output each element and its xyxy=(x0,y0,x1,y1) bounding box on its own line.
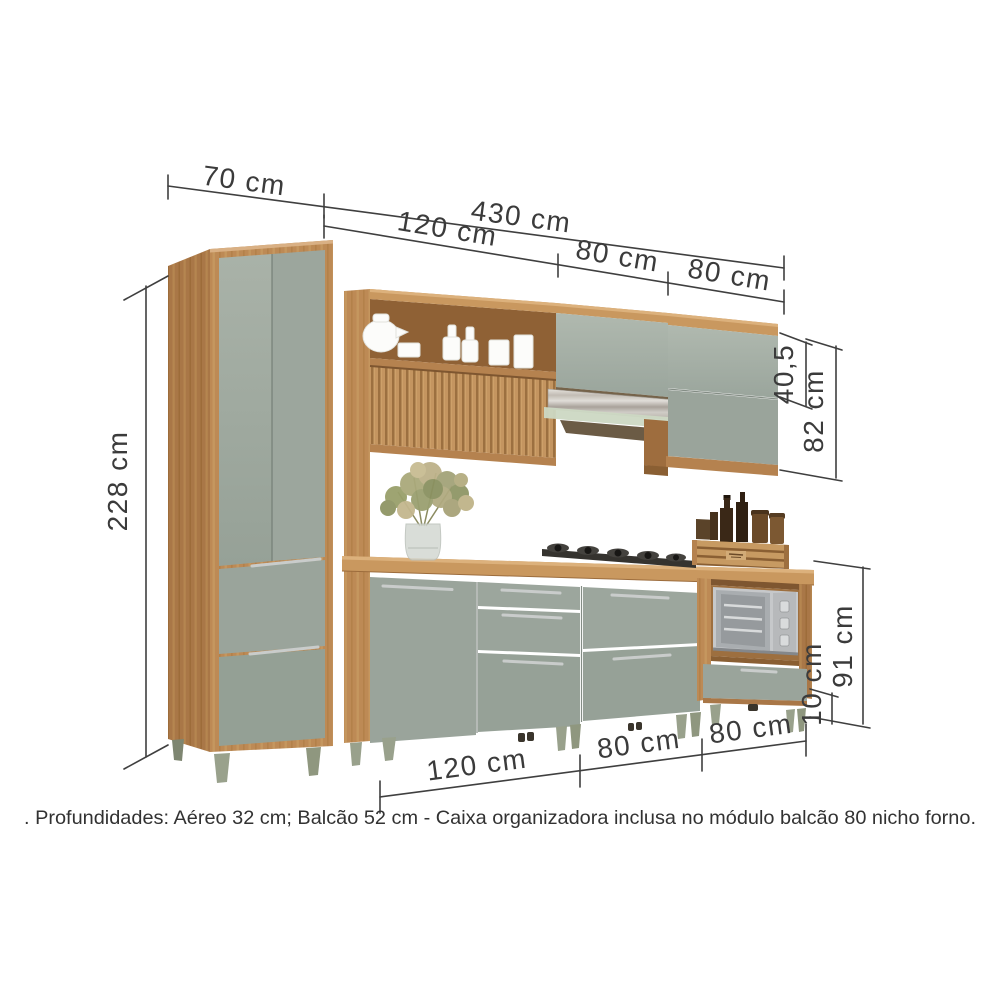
dim-label-feet-height: 10 cm xyxy=(796,642,827,726)
upper-shelf-open-niche xyxy=(363,289,556,380)
tall-cabinet-drawer-1 xyxy=(219,560,325,654)
tall-cabinet-drawer-2 xyxy=(219,649,325,746)
microwave-knob xyxy=(780,635,789,646)
tall-cabinet-door-left xyxy=(219,254,272,566)
hood-side-panel xyxy=(644,419,668,468)
oven-module xyxy=(697,578,812,733)
fluted-sliding-cabinet xyxy=(370,366,556,466)
hood-module-flip-door xyxy=(556,313,668,397)
base-120-door xyxy=(370,577,476,743)
dim-label-aerial-height: 82 cm xyxy=(798,369,829,453)
glass-vase xyxy=(405,524,441,560)
dim-label-left-height: 228 cm xyxy=(102,431,133,532)
kitchen-diagram-svg: 70 cm 430 cm 120 cm 80 cm 80 cm 228 cm 4… xyxy=(0,0,1000,1000)
microwave xyxy=(713,587,798,655)
product-dimension-diagram: 70 cm 430 cm 120 cm 80 cm 80 cm 228 cm 4… xyxy=(0,0,1000,1000)
tall-cabinet-side-panel xyxy=(168,249,210,752)
page-background xyxy=(0,0,1000,1000)
dim-label-door-height: 40,5 xyxy=(768,344,799,405)
tall-cabinet-door-right xyxy=(272,250,325,561)
cabinet-foot xyxy=(172,739,184,761)
tall-cabinet xyxy=(168,240,333,783)
depth-note: . Profundidades: Aéreo 32 cm; Balcão 52 … xyxy=(24,807,976,829)
base-120-drawer-3 xyxy=(478,653,580,732)
cabinet-foot xyxy=(350,742,362,766)
hutch-post xyxy=(344,289,370,743)
dim-label-base-height: 91 cm xyxy=(827,604,858,688)
upper-right-door-bottom xyxy=(668,390,778,465)
upper-right-door-top xyxy=(668,325,778,398)
microwave-knob xyxy=(780,618,789,629)
microwave-knob xyxy=(780,601,789,612)
